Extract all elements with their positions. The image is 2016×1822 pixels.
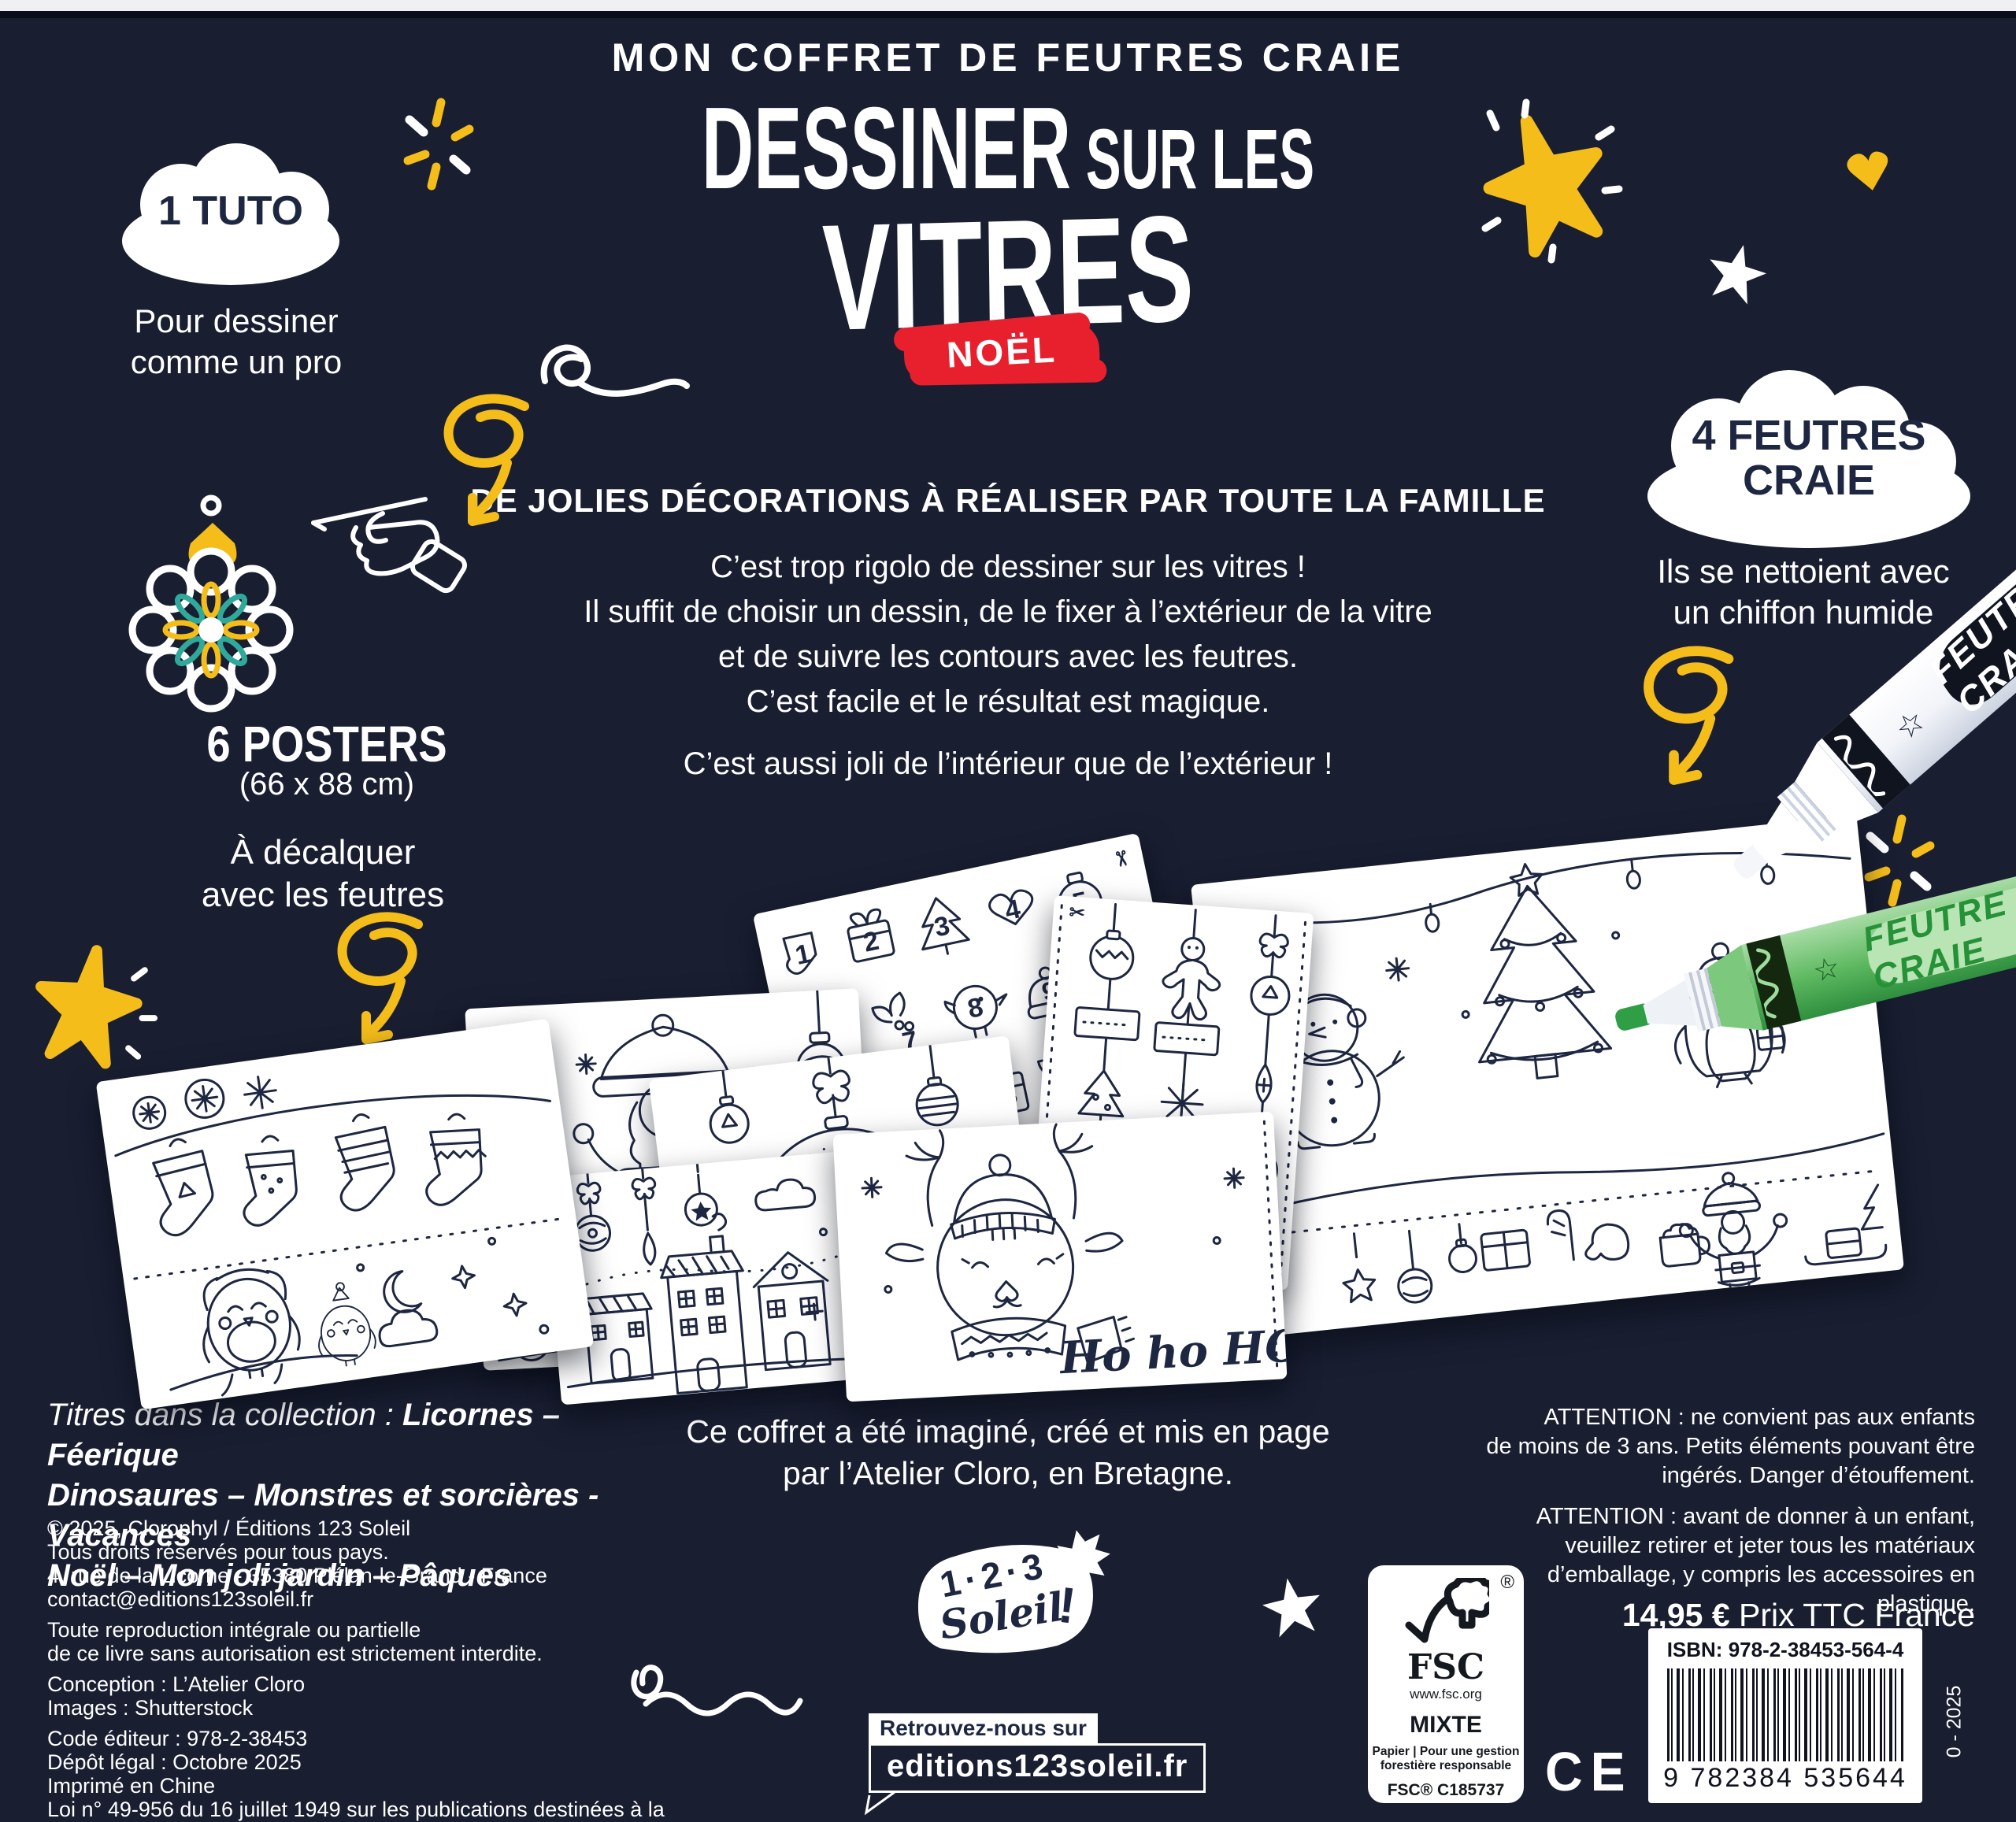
svg-text:1: 1 xyxy=(793,939,813,971)
loop-arrow-icon xyxy=(1630,646,1764,803)
intro-p3: et de suivre les contours avec les feutr… xyxy=(378,635,1638,680)
legal-email: contact@editions123soleil.fr xyxy=(47,1587,724,1611)
posters-sub2: avec les feutres xyxy=(102,874,543,917)
poster-reindeer: Ho ho HO xyxy=(832,1112,1287,1402)
posters-subtitle: À décalquer avec les feutres xyxy=(102,831,543,917)
badge-label: NOËL xyxy=(946,328,1058,376)
logo-123soleil: 1·2·3 Soleil ! xyxy=(910,1528,1119,1668)
fsc-tree-icon xyxy=(1403,1578,1489,1650)
legal-printed: Imprimé en Chine xyxy=(47,1774,724,1798)
heart-icon xyxy=(1843,146,1898,202)
warning1-line1: ATTENTION : ne convient pas aux enfants xyxy=(1449,1403,1975,1432)
tuto-subtitle: Pour dessiner comme un pro xyxy=(71,301,402,383)
fsc-label: ® FSC www.fsc.org MIXTE Papier | Pour un… xyxy=(1368,1565,1524,1803)
legal-copyright: © 2025, Clorophyl / Éditions 123 Soleil xyxy=(47,1516,724,1540)
website-url: editions123soleil.fr xyxy=(887,1749,1188,1783)
feutres-subtitle: Ils se nettoient avec un chiffon humide xyxy=(1599,551,2008,633)
fsc-cert: FSC® C185737 xyxy=(1368,1781,1524,1800)
intro-p4: C’est facile et le résultat est magique. xyxy=(378,680,1638,724)
intro-p2: Il suffit de choisir un dessin, de le fi… xyxy=(378,590,1638,635)
bauble-flower-doodle xyxy=(124,494,298,715)
feutres-cloud-line2: CRAIE xyxy=(1743,458,1875,503)
posters-sub1: À décalquer xyxy=(102,831,543,874)
svg-text:3: 3 xyxy=(932,910,952,942)
edition-code-vertical: 0 - 2025 xyxy=(1944,1667,1966,1777)
legal-law: Loi n° 49-956 du 16 juillet 1949 sur les… xyxy=(47,1798,724,1822)
warning1-line3: ingérés. Danger d’étouffement. xyxy=(1449,1461,1975,1491)
marker-star-icon: ☆ xyxy=(1888,702,1933,748)
credit-block: Ce coffret a été imaginé, créé et mis en… xyxy=(661,1411,1354,1494)
tuto-line1: Pour dessiner xyxy=(71,301,402,342)
collection-prefix: Titres dans la collection : xyxy=(47,1398,402,1432)
svg-text:✂: ✂ xyxy=(1108,848,1135,870)
feutres-cloud: 4 FEUTRES CRAIE xyxy=(1640,364,1978,553)
findus-label: Retrouvez-nous sur xyxy=(880,1716,1087,1740)
feutres-line2: un chiffon humide xyxy=(1599,592,2008,633)
squiggle-icon xyxy=(535,326,693,413)
legal-depot: Dépôt légal : Octobre 2025 xyxy=(47,1750,724,1774)
website-box-tail xyxy=(858,1791,898,1817)
fsc-registered: ® xyxy=(1500,1572,1514,1594)
legal-rights: Tous droits réservés pour tous pays. xyxy=(47,1540,724,1564)
svg-text:Ho ho HO: Ho ho HO xyxy=(1058,1320,1288,1384)
warning2-line2: veuillez retirer et jeter tous les matér… xyxy=(1449,1531,1975,1561)
tuto-cloud: 1 TUTO xyxy=(117,132,345,290)
intro-p1: C’est trop rigolo de dessiner sur les vi… xyxy=(378,545,1638,590)
box-back-cover: MON COFFRET DE FEUTRES CRAIE DESSINER SU… xyxy=(0,0,2016,1822)
noel-badge: NOËL xyxy=(902,321,1100,383)
legal-address: 4, rue de la Licorne - 35380 Plélan-le-G… xyxy=(47,1564,724,1587)
sparkle-icon xyxy=(394,88,488,198)
feutres-cloud-label: 4 FEUTRES CRAIE xyxy=(1640,364,1978,553)
feutres-line1: Ils se nettoient avec xyxy=(1599,551,2008,592)
intro-paragraph: C’est trop rigolo de dessiner sur les vi… xyxy=(378,545,1638,724)
credit-line1: Ce coffret a été imaginé, créé et mis en… xyxy=(661,1411,1354,1453)
top-edge-strip xyxy=(0,0,2016,11)
ce-mark: CE xyxy=(1545,1740,1633,1803)
tuto-cloud-label: 1 TUTO xyxy=(117,132,345,290)
isbn-text: ISBN: 978-2-38453-564-4 xyxy=(1648,1638,1922,1662)
barcode-box: ISBN: 978-2-38453-564-4 9 782384 535644 xyxy=(1648,1628,1922,1803)
kicker-title: MON COFFRET DE FEUTRES CRAIE xyxy=(378,35,1638,80)
fsc-acronym: FSC xyxy=(1368,1650,1524,1685)
feutres-cloud-line1: 4 FEUTRES xyxy=(1692,413,1925,458)
barcode-bars xyxy=(1667,1668,1903,1761)
squiggle-icon-footer xyxy=(622,1638,811,1740)
poster-stockings-owls xyxy=(96,1019,595,1410)
fsc-url: www.fsc.org xyxy=(1368,1687,1524,1702)
posters-size: (66 x 88 cm) xyxy=(142,767,512,802)
svg-text:8: 8 xyxy=(965,992,985,1024)
fsc-desc2: forestière responsable xyxy=(1368,1759,1524,1773)
intro-outro: C’est aussi joli de l’intérieur que de l… xyxy=(378,746,1638,782)
star-burst-icon xyxy=(1457,94,1638,276)
marker-star-icon: ☆ xyxy=(1809,949,1844,990)
website-box: editions123soleil.fr xyxy=(869,1743,1206,1793)
warning-block-1: ATTENTION : ne convient pas aux enfants … xyxy=(1449,1403,1975,1491)
posters-count-title: 6 POSTERS xyxy=(169,715,484,773)
warning2-line1: ATTENTION : avant de donner à un enfant, xyxy=(1449,1502,1975,1531)
credit-line2: par l’Atelier Cloro, en Bretagne. xyxy=(661,1453,1354,1494)
svg-text:4: 4 xyxy=(1002,894,1023,926)
star-icon-white xyxy=(1701,238,1772,309)
star-icon-white-footer xyxy=(1257,1572,1328,1642)
svg-text:2: 2 xyxy=(861,926,881,958)
tuto-line2: comme un pro xyxy=(71,342,402,383)
loop-arrow-icon xyxy=(432,394,558,543)
svg-text:✂: ✂ xyxy=(1069,902,1086,924)
warning1-line2: de moins de 3 ans. Petits éléments pouva… xyxy=(1449,1432,1975,1461)
poster-houses-garland xyxy=(542,1151,868,1405)
top-edge-shadow xyxy=(0,11,2016,18)
star-burst-icon-left xyxy=(8,929,165,1087)
fsc-desc1: Papier | Pour une gestion xyxy=(1368,1745,1524,1759)
fsc-grade: MIXTE xyxy=(1368,1712,1524,1739)
findus-label-box: Retrouvez-nous sur xyxy=(869,1713,1098,1745)
barcode-digits: 9 782384 535644 xyxy=(1648,1763,1922,1794)
